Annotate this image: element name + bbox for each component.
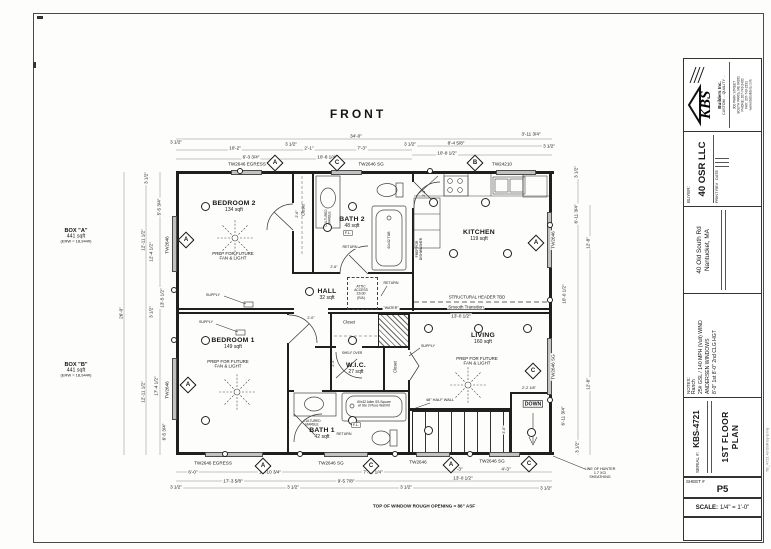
- plan-annotation: "WATER": [383, 306, 400, 310]
- window-band: [172, 358, 177, 420]
- wall: [510, 392, 552, 394]
- electrical-symbol: [171, 287, 177, 293]
- plan-annotation: 60x32 Adler SS-Squarew/ Ste 3 Piece Wall…: [357, 400, 390, 407]
- dimension-label: 12'-8": [585, 377, 590, 391]
- dimension-label: 3 1/2": [148, 305, 153, 319]
- electrical-symbol: [392, 451, 398, 457]
- revision-table: PRINT REV DATE: [713, 135, 729, 203]
- electrical-symbol: [222, 451, 228, 457]
- dimension-label: 13'-5 1/2": [159, 287, 164, 309]
- rev-col-label: PRINT REV: [715, 183, 729, 203]
- electrical-symbol: [171, 337, 177, 343]
- electrical-symbol: [201, 202, 210, 211]
- dimension-label: 3'-6": [502, 426, 506, 435]
- buyer-label: BUYER:: [686, 135, 691, 203]
- dimension-label: 12'-11 1/2": [140, 228, 145, 252]
- electrical-symbol: [503, 249, 512, 258]
- company-motto: CUSTOM ... QUALITY ...: [722, 62, 726, 128]
- room-label: BEDROOM 2134 sqft: [212, 199, 255, 213]
- plan-annotation: F.L.: [344, 230, 353, 235]
- dimension-label: 10'-0 1/2": [561, 283, 566, 305]
- empty-box: [683, 517, 762, 541]
- water-heater-chase: [378, 314, 409, 347]
- scale-box: SCALE: 1/4" = 1'-0": [683, 498, 762, 517]
- room-label: LIVING160 sqft: [471, 331, 495, 345]
- room-label: BATH 248 sqft: [339, 215, 365, 229]
- title-section-address: 40 Old South Rd Nantucket, MA: [684, 206, 761, 293]
- plan-annotation: SUPPLY: [198, 320, 214, 324]
- dimension-label: 4'-3": [500, 466, 511, 471]
- dimension-label: 6'-11 3/4": [560, 405, 565, 426]
- wall: [412, 171, 414, 182]
- electrical-symbol: [547, 222, 553, 228]
- wall: [412, 208, 414, 311]
- dimension-label: 6'-3 3/4": [241, 154, 260, 159]
- dimension-label: 9'-5 7/8": [336, 478, 355, 483]
- window-band: [496, 170, 536, 175]
- window-band: [231, 170, 262, 175]
- dimension-label: 5'-5 3/4": [156, 197, 161, 216]
- dimension-label: 10'-8 1/2": [436, 150, 458, 155]
- electrical-symbol: [201, 416, 210, 425]
- electrical-symbol: [481, 198, 490, 207]
- dimension-label: 26'-0": [118, 306, 123, 320]
- window-band: [172, 216, 177, 272]
- dimension-label: 3 1/2": [573, 165, 578, 179]
- electrical-symbol: [467, 451, 473, 457]
- plan-annotation: SUPPLY: [420, 344, 436, 348]
- serial-value: KBS-4721: [692, 410, 701, 447]
- electrical-symbol: [547, 297, 553, 303]
- electrical-symbol: [449, 249, 458, 258]
- dimension-label: 6'-5 3/4": [161, 422, 166, 441]
- plan-annotation: PREP FOR FUTUREFAN & LIGHT: [207, 359, 248, 369]
- sheet-number-box: SHEET # P5: [683, 477, 762, 498]
- wall: [292, 272, 340, 274]
- wall: [510, 392, 512, 455]
- electrical-symbol: [201, 336, 210, 345]
- dimension-label: 2'-8": [422, 189, 426, 196]
- dimension-label: 7'-3": [356, 145, 367, 150]
- dimension-label: 2'-0": [307, 316, 316, 320]
- plan-annotation: Closet: [393, 361, 398, 373]
- front-label: FRONT: [330, 107, 386, 121]
- scale-value: 1/4" = 1'-0": [720, 505, 749, 511]
- svg-text:KBS: KBS: [698, 91, 712, 120]
- dimension-label: 3 1/2": [399, 484, 413, 489]
- plan-annotation: RETURN: [342, 245, 359, 249]
- dimension-label: 3'-11 3/4": [520, 131, 541, 136]
- dimension-label: 2'-2 1/8": [521, 386, 537, 390]
- electrical-symbol: [305, 287, 314, 296]
- scale-label: SCALE:: [696, 505, 718, 511]
- room-label: KITCHEN119 sqft: [463, 228, 495, 242]
- note-line: ANDERSEN WINDOWS: [705, 297, 712, 394]
- dimension-label: 3 1/2": [169, 484, 183, 489]
- site-address-line: 40 Old South Rd: [696, 210, 704, 290]
- sheet-border: [33, 13, 764, 543]
- window-label: TW2646: [550, 230, 555, 250]
- note-line: 8'-0" 1st 8'-0" 2nd CLG HGT: [712, 297, 719, 394]
- electrical-symbol: [429, 198, 438, 207]
- dimension-label: 13'-0 1/2": [450, 313, 472, 318]
- window-label: TW2646: [164, 235, 169, 255]
- dimension-label: 3 1/2": [539, 485, 553, 490]
- kbs-logo: KBS: [686, 63, 712, 127]
- window-band: [416, 452, 450, 457]
- dimension-label: 2'-6": [295, 210, 299, 217]
- rev-col-label: DATE: [715, 170, 729, 180]
- electrical-symbol: [427, 168, 433, 174]
- plan-annotation: PREP FOR FUTUREFAN & LIGHT: [212, 251, 253, 261]
- note-line: Ranch: [691, 297, 698, 394]
- dimension-label: 3 1/2": [542, 143, 556, 148]
- dimension-label: 3 1/2": [574, 440, 579, 454]
- plan-annotation: F.L.: [352, 422, 361, 427]
- dimension-label: 2'-4": [331, 359, 335, 366]
- registration-mark: [33, 62, 36, 68]
- dimension-label: 17'-3 5/8": [222, 478, 244, 483]
- electrical-symbol: [348, 336, 357, 345]
- window-label: TW2646 SG: [357, 161, 385, 166]
- plan-annotation: Smooth Transition: [447, 304, 485, 309]
- window-label: TW2646 EGRESS: [227, 161, 267, 166]
- dimension-label: 3 1/2": [284, 141, 298, 146]
- plan-annotation: 60x32 TUB: [387, 232, 391, 249]
- wall: [312, 171, 314, 274]
- title-block: SERIAL #: KBS-4721 1ST FLOOR PLAN NOTES:…: [683, 58, 762, 477]
- plan-annotation: SUPPLY: [205, 293, 221, 297]
- dimension-label: 8'-4 5/8": [446, 140, 465, 145]
- company-address: 300 PARK STREET SOUTH PARIS, ME 04281 PH…: [733, 62, 753, 128]
- registration-mark: [37, 16, 43, 19]
- dimension-label: 6'-11 3/4": [573, 203, 578, 224]
- sheet-number: P5: [684, 484, 761, 495]
- window-label: TW2646 EGRESS: [193, 460, 233, 465]
- title-section-notes: NOTES: Ranch 25# GSL / 140 MPH (Vult) WI…: [684, 293, 761, 397]
- box-b-label: BOX "B" 441 sqft (ERW = 18,944#): [61, 362, 92, 378]
- serial-label: SERIAL #:: [695, 452, 700, 473]
- window-label: TW24210: [491, 161, 513, 166]
- window-band: [205, 452, 263, 457]
- window-label: TW2646 SG: [317, 460, 345, 465]
- plan-annotation: SHELF OVER: [342, 351, 362, 355]
- wall: [330, 312, 332, 390]
- dimension-label: 3 1/2": [403, 141, 417, 146]
- plan-annotation: CULTUREDMARBLE: [324, 209, 331, 226]
- dimension-label: 17'-4 1/2": [153, 375, 158, 397]
- note-line: 25# GSL / 140 MPH (Vult) WIND: [698, 297, 705, 394]
- room-label: BEDROOM 1149 sqft: [211, 336, 254, 350]
- wall: [287, 390, 294, 392]
- electrical-symbol: [348, 202, 357, 211]
- dimension-label: 2'-1": [303, 145, 314, 150]
- dimension-label: 12'-11 1/2": [140, 380, 145, 404]
- dimension-label: 13'-0 1/2": [452, 475, 474, 480]
- window-label: TW2646 SG: [550, 353, 555, 381]
- plan-annotation: DOWN: [523, 400, 543, 407]
- sheet-label: SHEET #: [686, 479, 705, 484]
- plan-annotation: Closet: [343, 320, 355, 325]
- wall: [287, 343, 289, 455]
- wall: [383, 346, 385, 390]
- room-label: BATH 142 sqft: [309, 426, 335, 440]
- plan-annotation: Closet: [301, 204, 306, 216]
- dimension-label: 2'-6": [330, 265, 339, 269]
- plan-annotation: LINE OF HUNTER1.7 XCISHEATHING: [585, 467, 616, 480]
- window-label: TW2646 SG: [478, 458, 506, 463]
- plan-annotation: PREP FOR FUTUREFAN & LIGHT: [456, 356, 497, 366]
- dimension-label: 6'-0": [187, 469, 198, 474]
- plan-annotation: RETURN: [383, 281, 400, 285]
- drawing-sheet: FRONT BOX "A" 441 sqft (ERW = 18,944#) B…: [0, 0, 771, 549]
- wall: [287, 312, 289, 315]
- dimension-label: 3 1/2": [286, 484, 300, 489]
- electrical-symbol: [297, 451, 303, 457]
- dimension-label: 3 1/2": [169, 139, 183, 144]
- title-section-buyer: BUYER: 40 OSR LLC PRINT REV DATE: [684, 131, 761, 206]
- marriage-wall: [176, 308, 294, 310]
- plan-annotation: TOP OF WINDOW ROUGH OPENING = 86" ASF: [373, 503, 475, 508]
- electrical-symbol: [523, 324, 532, 333]
- plot-file-note: TB_/4721 40 OSR By Emily: [766, 428, 770, 472]
- electrical-symbol: [424, 324, 433, 333]
- dimension-label: 10'-2": [228, 145, 242, 150]
- buyer-name: 40 OSR LLC: [697, 135, 708, 203]
- wall: [408, 380, 410, 455]
- window-band: [324, 452, 368, 457]
- wall: [292, 231, 294, 274]
- plan-annotation: 48" HALF WALL: [425, 398, 455, 402]
- drawing-title: 1ST FLOOR PLAN: [720, 401, 740, 473]
- box-a-label: BOX "A" 441 sqft (ERW = 18,944#): [61, 228, 92, 244]
- dimension-label: 3 1/2": [143, 171, 148, 185]
- wall: [368, 272, 414, 274]
- marriage-wall: [176, 312, 294, 314]
- room-label: W.I.C.27 sqft: [346, 361, 366, 375]
- dimension-label: 12'-8": [585, 236, 590, 250]
- window-label: TW2646: [408, 459, 428, 464]
- electrical-symbol: [527, 428, 536, 437]
- wall: [315, 346, 336, 348]
- plan-annotation: PREP FORDISHWASHER: [415, 238, 423, 260]
- wall: [292, 171, 294, 203]
- electrical-symbol: [237, 168, 243, 174]
- room-label: HALL32 sqft: [317, 287, 336, 301]
- dimension-label: 12'-4 1/2": [148, 241, 153, 263]
- site-address-line: Nantucket, MA: [704, 210, 712, 290]
- title-section-serial: SERIAL #: KBS-4721 1ST FLOOR PLAN: [684, 397, 761, 476]
- title-section-logo: KBS Builders Inc. CUSTOM ... QUALITY ...…: [684, 59, 761, 131]
- marriage-wall: [328, 312, 552, 314]
- electrical-symbol: [424, 426, 433, 435]
- plan-annotation: RETURN: [336, 432, 353, 436]
- window-label: TW2646: [164, 380, 169, 400]
- wall: [322, 390, 410, 392]
- plan-annotation: STRUCTURAL HEADER TBD: [448, 295, 506, 300]
- electrical-symbol: [547, 397, 553, 403]
- dimension-label: 34'-0": [349, 133, 363, 138]
- plan-annotation: ATTICACCESS22x30(R/A): [353, 284, 368, 299]
- window-band: [489, 452, 520, 457]
